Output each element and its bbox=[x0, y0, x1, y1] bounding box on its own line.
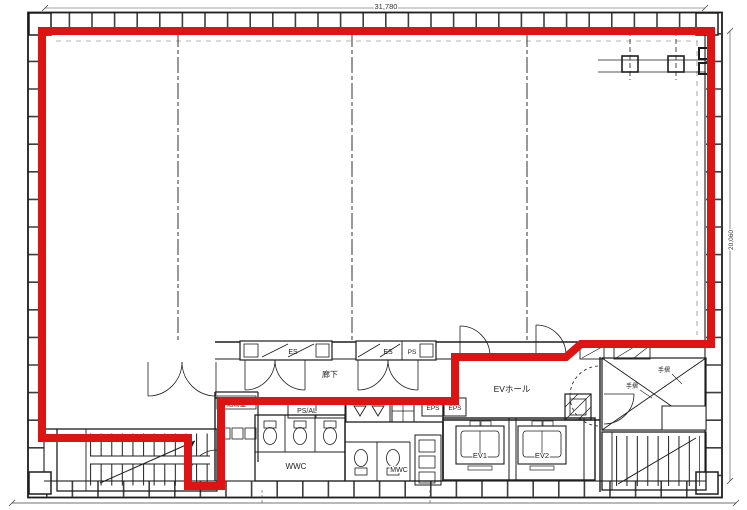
column-grid-lines bbox=[56, 31, 698, 342]
mens-wc-room bbox=[345, 422, 443, 485]
es-shaft-2-label: ES bbox=[383, 349, 393, 356]
es-shaft-1-label: ES bbox=[288, 349, 298, 356]
lease-area-outline bbox=[42, 31, 711, 486]
eps-left-label: EPS bbox=[426, 405, 440, 412]
corridor-label: 廊下 bbox=[322, 369, 338, 379]
es-shaft-unit-2 bbox=[356, 341, 436, 360]
elevator-1-label: EV1 bbox=[473, 451, 487, 460]
handrail-a-label: 手摺 bbox=[626, 382, 638, 390]
dimension-lines bbox=[9, 5, 739, 506]
rooftop-equipment-detail bbox=[598, 31, 713, 80]
eps-right-label: EPS bbox=[448, 405, 462, 412]
top-dimension-text: 31,780 bbox=[375, 2, 398, 11]
ps-shaft-label: PS bbox=[408, 349, 417, 356]
hatched-shaft bbox=[565, 394, 591, 420]
elevator-2-label: EV2 bbox=[535, 451, 549, 460]
handrail-b-label: 手摺 bbox=[658, 366, 670, 374]
mens-wc-label: MWC bbox=[390, 467, 408, 474]
right-dimension-text: 20,060 bbox=[728, 230, 735, 250]
exterior-walls bbox=[28, 13, 722, 498]
floor-plan-drawing: ES ES PS bbox=[0, 0, 747, 510]
womens-wc-room bbox=[255, 415, 345, 481]
ps-al-label: PS/AL bbox=[297, 408, 317, 415]
womens-wc-label: WWC bbox=[286, 462, 307, 471]
ev-hall-label: EVホール bbox=[494, 384, 531, 394]
floor-plan-sheet: ES ES PS bbox=[0, 0, 747, 510]
es-shaft-unit-1 bbox=[240, 341, 332, 360]
